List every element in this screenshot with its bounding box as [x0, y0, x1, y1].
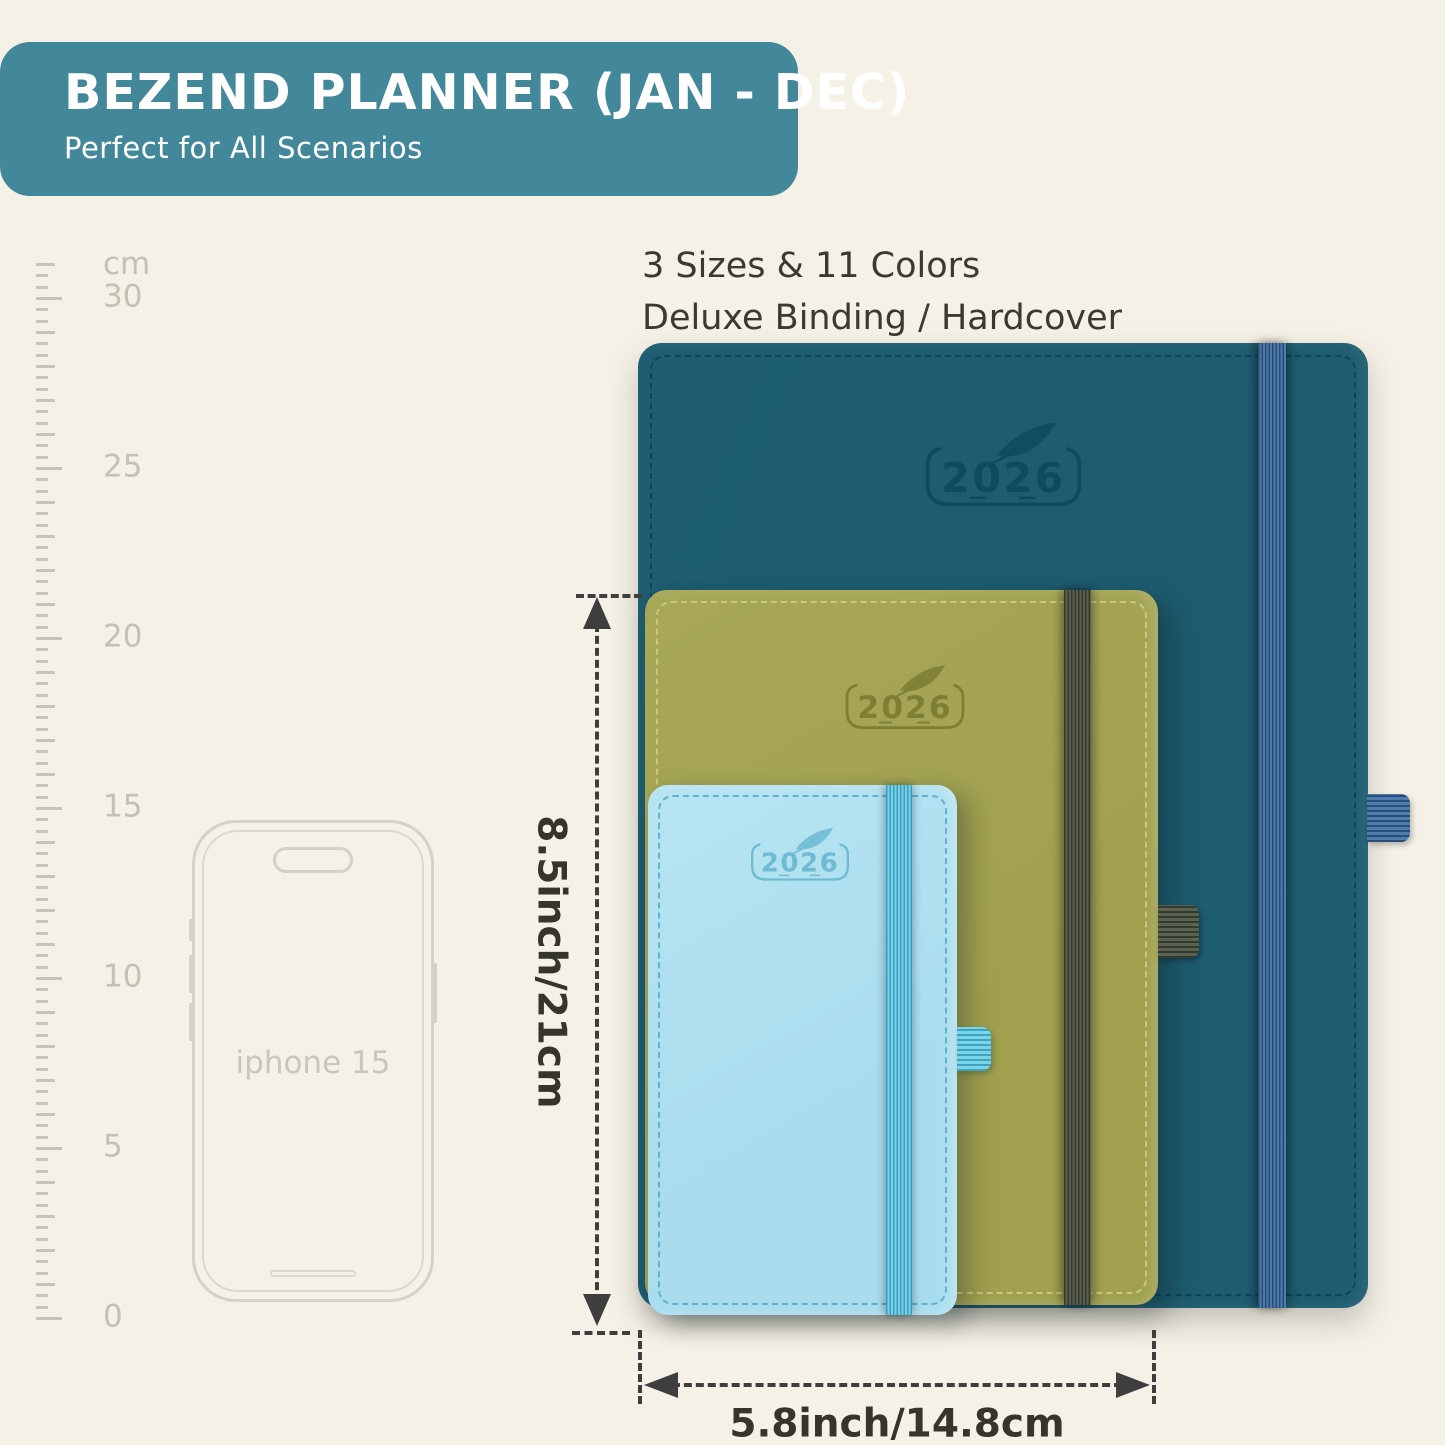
ruler-tick — [36, 1034, 48, 1037]
ruler-tick — [36, 546, 48, 549]
arrow-down-icon — [583, 1294, 611, 1326]
pen-loop — [1367, 794, 1410, 842]
ruler-tick — [36, 331, 55, 334]
ruler-tick — [36, 456, 48, 459]
phone-volume-down-button — [189, 1003, 193, 1041]
ruler-label: 0 — [103, 1298, 123, 1334]
ruler-tick — [36, 376, 48, 379]
ruler-tick — [36, 308, 48, 311]
elastic-band — [1064, 590, 1091, 1305]
ruler-tick — [36, 354, 48, 357]
ruler-tick — [36, 286, 48, 289]
ruler-tick — [36, 773, 55, 776]
width-dim-label: 5.8inch/14.8cm — [729, 1402, 1064, 1445]
ruler-tick — [36, 1204, 48, 1207]
year-logo: 2026 — [921, 421, 1086, 513]
ruler-tick — [36, 920, 48, 923]
ruler-tick — [36, 1136, 48, 1139]
product-size-diagram: BEZEND PLANNER (JAN - DEC) Perfect for A… — [0, 0, 1445, 1445]
year-text: 2026 — [761, 849, 840, 879]
ruler-tick — [36, 1215, 55, 1218]
width-dim-right-tick — [1152, 1330, 1156, 1404]
planner-small-blue: 2026 — [648, 785, 957, 1315]
ruler-label: 15 — [103, 788, 142, 824]
ruler-tick — [36, 818, 48, 821]
ruler-tick — [36, 864, 48, 867]
ruler-label: 20 — [103, 618, 142, 654]
iphone-label: iphone 15 — [195, 1045, 431, 1081]
ruler-tick — [36, 297, 62, 300]
height-dim-label: 8.5inch/21cm — [529, 815, 574, 1108]
ruler-tick — [36, 762, 48, 765]
arrow-right-icon — [1116, 1372, 1150, 1398]
ruler-tick — [36, 569, 55, 572]
ruler-tick — [36, 490, 48, 493]
ruler-tick — [36, 954, 48, 957]
ruler-tick — [36, 1283, 55, 1286]
height-dim-line — [595, 612, 599, 1314]
ruler-tick — [36, 841, 55, 844]
phone-mute-button — [189, 919, 193, 941]
ruler-tick — [36, 1102, 48, 1105]
ruler-tick — [36, 580, 48, 583]
arrow-left-icon — [644, 1372, 678, 1398]
ruler-tick — [36, 682, 48, 685]
ruler-tick — [36, 671, 55, 674]
year-logo: 2026 — [748, 827, 852, 885]
dynamic-island — [273, 847, 353, 873]
ruler-tick — [36, 467, 62, 470]
ruler-tick — [36, 660, 48, 663]
ruler-tick — [36, 1181, 55, 1184]
ruler-tick — [36, 342, 48, 345]
ruler-tick — [36, 524, 48, 527]
feature-line-sizes: 3 Sizes & 11 Colors — [642, 240, 1122, 292]
ruler-tick — [36, 1147, 62, 1150]
page-title: BEZEND PLANNER (JAN - DEC) — [64, 64, 798, 121]
ruler-tick — [36, 750, 48, 753]
ruler-tick — [36, 365, 55, 368]
ruler-tick — [36, 1272, 48, 1275]
ruler-tick — [36, 399, 55, 402]
year-text: 2026 — [941, 454, 1066, 502]
ruler-tick — [36, 263, 55, 266]
ruler-tick — [36, 558, 48, 561]
ruler-tick — [36, 1238, 48, 1241]
features-text: 3 Sizes & 11 Colors Deluxe Binding / Har… — [642, 240, 1122, 344]
elastic-band — [1258, 343, 1286, 1308]
ruler-tick — [36, 977, 62, 980]
ruler-tick — [36, 1090, 48, 1093]
ruler-tick — [36, 943, 55, 946]
ruler-tick — [36, 1011, 55, 1014]
ruler-tick — [36, 1000, 48, 1003]
width-dim-left-tick — [638, 1330, 642, 1404]
ruler-tick — [36, 603, 55, 606]
ruler-tick — [36, 1192, 48, 1195]
ruler-tick — [36, 388, 48, 391]
ruler-tick — [36, 1249, 55, 1252]
phone-power-button — [433, 963, 437, 1023]
ruler-tick — [36, 694, 48, 697]
elastic-band — [886, 785, 912, 1315]
ruler-tick — [36, 410, 48, 413]
ruler-tick — [36, 807, 62, 810]
ruler-tick — [36, 705, 55, 708]
ruler-tick — [36, 1294, 48, 1297]
ruler-label: 25 — [103, 448, 142, 484]
ruler-label: 5 — [103, 1128, 123, 1164]
arrow-up-icon — [583, 597, 611, 629]
ruler-tick — [36, 1124, 48, 1127]
ruler-tick — [36, 909, 55, 912]
ruler-label: 10 — [103, 958, 142, 994]
ruler-tick — [36, 626, 48, 629]
ruler-tick — [36, 1170, 48, 1173]
ruler-tick — [36, 1158, 48, 1161]
width-dim-line — [660, 1383, 1134, 1387]
ruler-tick — [36, 648, 48, 651]
pen-loop — [957, 1027, 991, 1071]
ruler-tick — [36, 1056, 48, 1059]
ruler-tick — [36, 1226, 48, 1229]
ruler-tick — [36, 932, 48, 935]
ruler-tick — [36, 830, 48, 833]
home-indicator — [270, 1270, 356, 1277]
phone-volume-up-button — [189, 955, 193, 993]
ruler-tick — [36, 728, 48, 731]
ruler-tick — [36, 1306, 48, 1309]
ruler-tick — [36, 988, 48, 991]
ruler-tick — [36, 478, 48, 481]
ruler-tick — [36, 444, 48, 447]
ruler-tick — [36, 592, 48, 595]
ruler-tick — [36, 796, 48, 799]
header-banner: BEZEND PLANNER (JAN - DEC) Perfect for A… — [0, 42, 798, 196]
ruler-tick — [36, 966, 48, 969]
ruler-tick — [36, 433, 55, 436]
ruler-unit-label: cm — [103, 246, 150, 282]
ruler-tick — [36, 637, 62, 640]
pen-loop — [1158, 905, 1199, 958]
page-subtitle: Perfect for All Scenarios — [64, 131, 798, 165]
feature-line-binding: Deluxe Binding / Hardcover — [642, 292, 1122, 344]
ruler-tick — [36, 274, 48, 277]
year-text: 2026 — [857, 690, 952, 726]
ruler-tick — [36, 739, 55, 742]
ruler-tick — [36, 784, 48, 787]
ruler-tick — [36, 1079, 55, 1082]
ruler-tick — [36, 320, 48, 323]
ruler-tick — [36, 614, 48, 617]
ruler-tick — [36, 422, 48, 425]
ruler-tick — [36, 1113, 55, 1116]
ruler-tick — [36, 512, 48, 515]
ruler-tick — [36, 1260, 48, 1263]
ruler-tick — [36, 1317, 62, 1320]
ruler-tick — [36, 501, 55, 504]
ruler-tick — [36, 716, 48, 719]
ruler-tick — [36, 875, 55, 878]
ruler-tick — [36, 886, 48, 889]
ruler-tick — [36, 1022, 48, 1025]
ruler-label: 30 — [103, 278, 142, 314]
year-logo: 2026 — [842, 664, 968, 735]
ruler-tick — [36, 852, 48, 855]
ruler-tick — [36, 898, 48, 901]
ruler-tick — [36, 1045, 55, 1048]
ruler-tick — [36, 535, 55, 538]
ruler-tick — [36, 1068, 48, 1071]
iphone-outline: iphone 15 — [192, 820, 434, 1302]
height-dim-bottom-tick — [572, 1331, 630, 1335]
